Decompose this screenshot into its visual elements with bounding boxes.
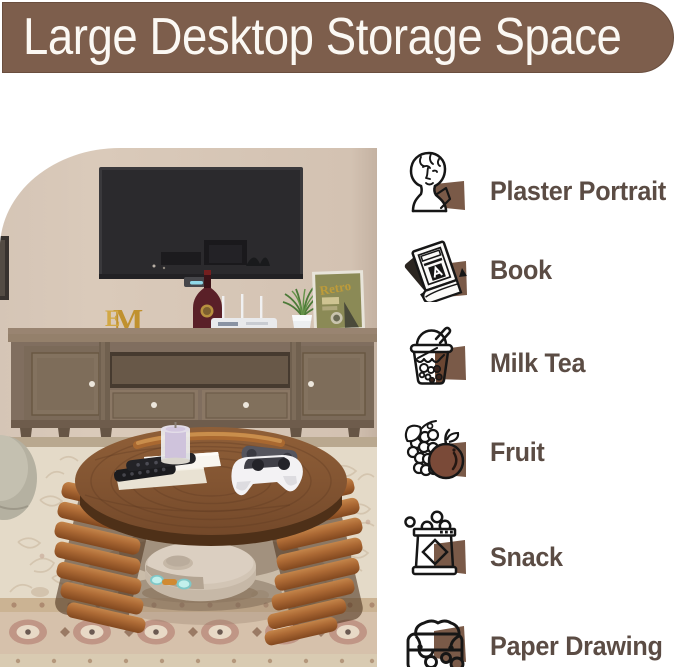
svg-text:E: E [105, 306, 120, 331]
